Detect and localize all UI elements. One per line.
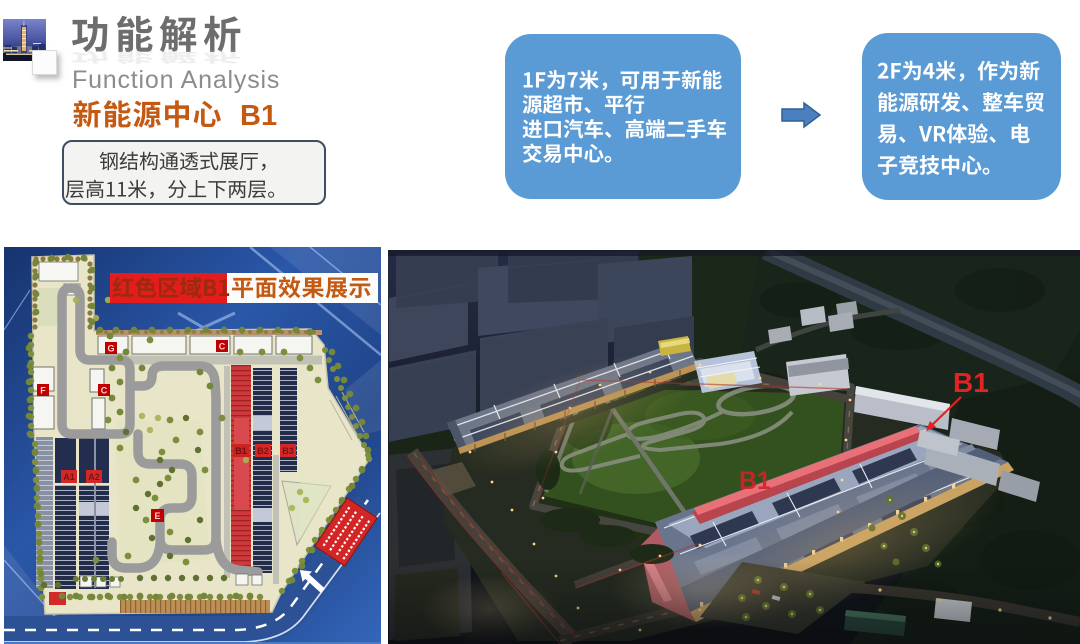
svg-text:B1: B1 — [240, 100, 277, 132]
